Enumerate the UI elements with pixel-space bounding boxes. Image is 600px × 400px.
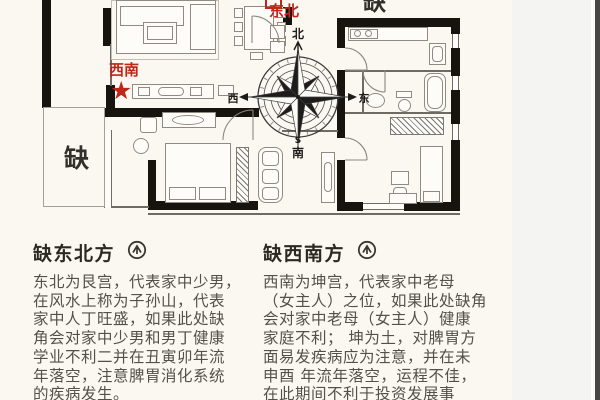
missing-corner-label-southwest: 缺	[64, 146, 89, 171]
clipped-red-marker	[265, 0, 282, 9]
section-southwest-heading: 缺西南方	[263, 239, 345, 266]
compass-north-label: 北	[292, 26, 304, 41]
southwest-star-icon: ★	[110, 78, 132, 103]
page-edge-border	[595, 0, 600, 400]
section-northeast-heading: 缺东北方	[33, 239, 115, 266]
section-southwest: 缺西南方 西南为坤宫，代表家中老母 （女主人）之位，如果此处缺角 会对家中老母（…	[263, 239, 495, 400]
floorplan: 北 S 南 西 东 缺 缺 西南 ★ 东北	[0, 0, 512, 220]
compass-south-label: 南	[292, 145, 304, 160]
compass-up-icon	[127, 240, 147, 260]
compass-s-letter: S	[295, 136, 301, 146]
compass-rose: 北 S 南 西 东	[225, 26, 375, 166]
compass-up-icon	[357, 240, 377, 260]
page: 北 S 南 西 东 缺 缺 西南 ★ 东北 缺东北方 东北为艮宫，代表家中少男，…	[0, 0, 600, 400]
compass-west-label: 西	[228, 92, 239, 105]
section-southwest-body: 西南为坤宫，代表家中老母 （女主人）之位，如果此处缺角 会对家中老母（女主人）健…	[263, 273, 495, 400]
compass-east-label: 东	[359, 91, 370, 105]
section-northeast-body: 东北为艮宫，代表家中少男， 在风水上称为子孙山，代表 家中人丁旺盛，如果此处缺 …	[33, 273, 245, 400]
page-right-margin	[512, 0, 600, 400]
missing-corner-label-northeast: 缺	[363, 0, 386, 15]
section-northeast: 缺东北方 东北为艮宫，代表家中少男， 在风水上称为子孙山，代表 家中人丁旺盛，如…	[33, 239, 245, 400]
compass-north-arrow	[294, 42, 302, 53]
